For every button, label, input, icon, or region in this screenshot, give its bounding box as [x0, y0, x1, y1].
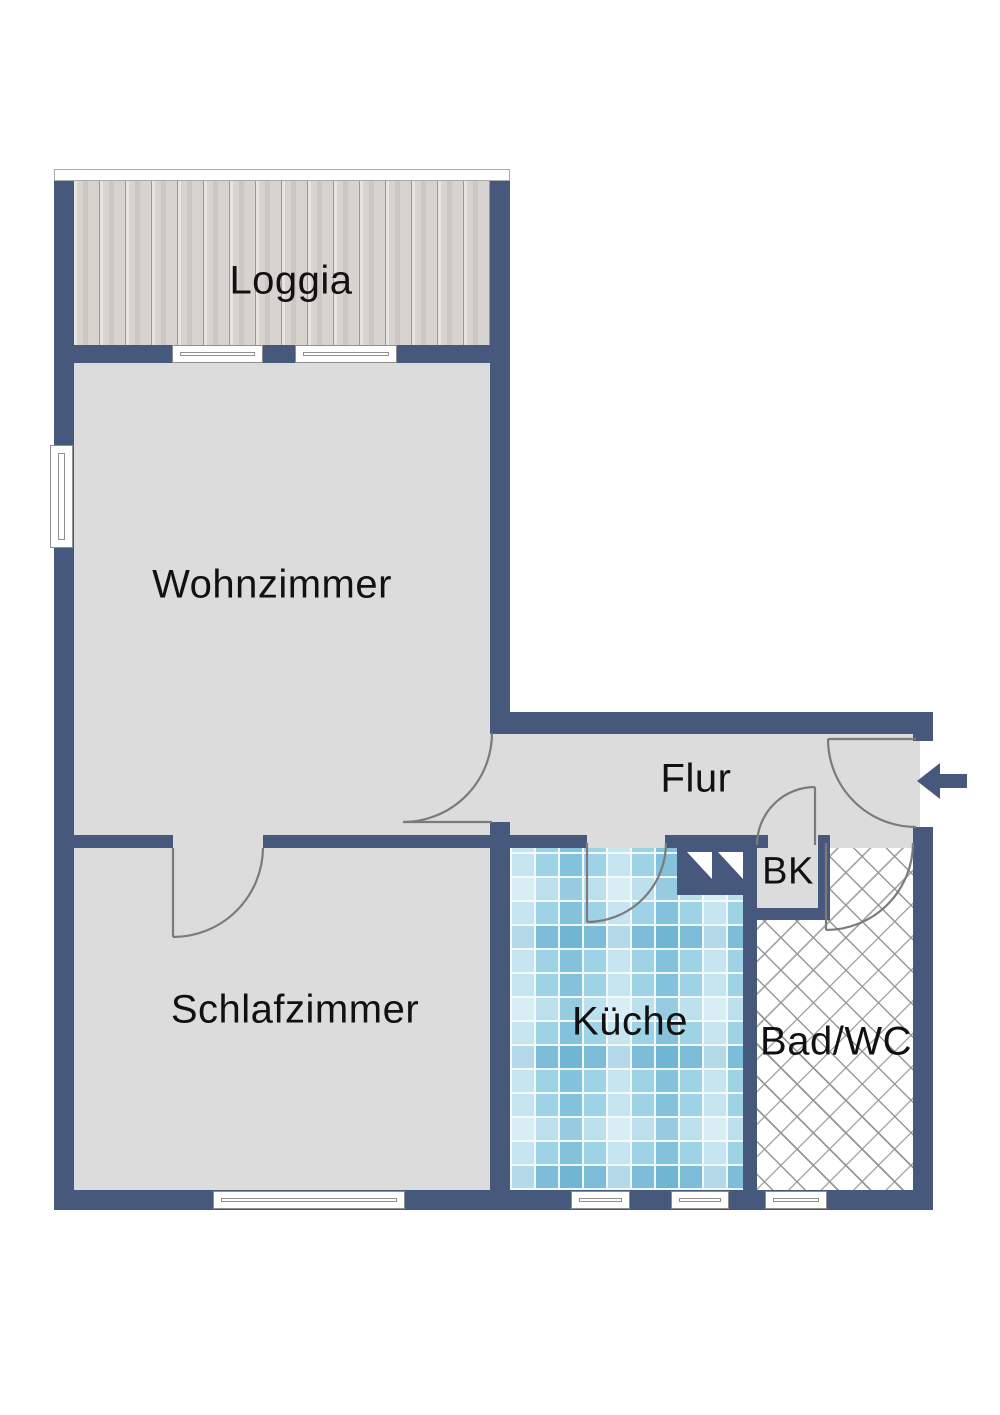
entrance-arrow-shaft: [939, 774, 967, 788]
shaft-triangle-icon: [718, 852, 743, 879]
badwc-window: [765, 1191, 827, 1209]
wall-flur-bottom-a: [510, 835, 587, 848]
wall-loggia-right: [490, 169, 510, 345]
window-pane: [579, 1198, 622, 1203]
floor-plan: Loggia Wohnzimmer Flur BK Küche Bad/WC S…: [0, 0, 1000, 1415]
window-pane: [180, 352, 255, 357]
window-pane: [679, 1198, 721, 1203]
wohnzimmer-label: Wohnzimmer: [152, 563, 392, 608]
kueche-door-opening: [587, 835, 665, 848]
wall-schlaf-kueche: [490, 822, 510, 1190]
loggia-window-1: [172, 345, 263, 363]
entrance-arrow-icon: [917, 763, 967, 799]
wall-loggia-bottom: [54, 345, 510, 363]
schlafzimmer-door-opening: [173, 835, 263, 848]
shaft-triangle-icon: [687, 852, 712, 879]
kueche-window-2: [671, 1191, 729, 1209]
wall-wohn-schlaf-left: [54, 835, 173, 848]
wall-bk-bottom: [743, 908, 830, 920]
kueche-label: Küche: [572, 1000, 688, 1045]
loggia-railing: [54, 169, 510, 181]
wall-right-outer: [913, 827, 933, 1210]
shaft-symbol: [677, 845, 757, 895]
flur-label: Flur: [661, 757, 732, 802]
window-pane: [58, 453, 65, 540]
wall-left-outer: [54, 169, 74, 1210]
badwc-door-opening: [830, 835, 913, 848]
window-pane: [221, 1198, 397, 1203]
wall-wohnzimmer-right: [490, 345, 510, 734]
window-pane: [303, 352, 389, 357]
schlafzimmer-label: Schlafzimmer: [171, 988, 419, 1033]
loggia-label: Loggia: [229, 259, 352, 304]
wall-kueche-bad: [743, 895, 757, 1190]
kueche-window-1: [571, 1191, 630, 1209]
entrance-arrow-head: [917, 763, 940, 799]
schlafzimmer-window: [213, 1191, 405, 1209]
badwc-label: Bad/WC: [760, 1020, 912, 1065]
loggia-window-2: [295, 345, 397, 363]
bk-label: BK: [762, 851, 814, 894]
wohnzimmer-window: [50, 445, 73, 548]
window-pane: [773, 1198, 819, 1203]
wall-entrance-jamb: [913, 734, 933, 741]
wall-wohn-schlaf-right: [263, 835, 510, 848]
wall-flur-top: [490, 712, 933, 734]
